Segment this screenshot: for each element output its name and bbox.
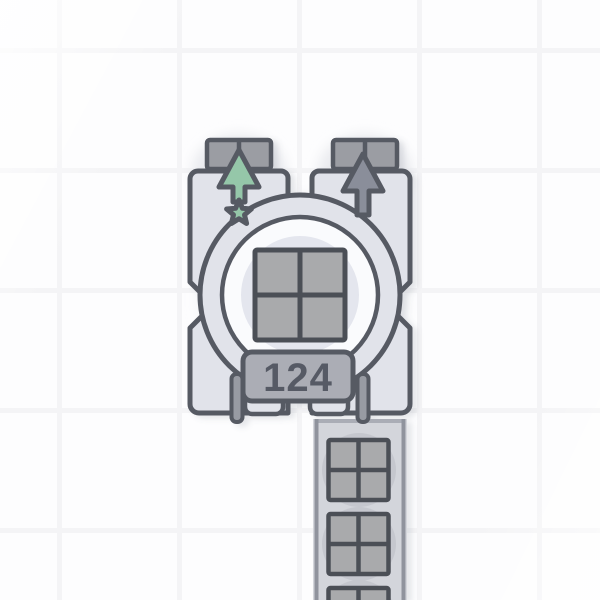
belt-item-crate-1 (329, 440, 389, 500)
producer-machine[interactable]: 124 (190, 140, 410, 422)
world-layer: 124 (0, 0, 600, 600)
belt-item-crate-2 (329, 514, 389, 574)
count-badge-label: 124 (263, 356, 333, 400)
belt-item-crate-3 (329, 588, 389, 600)
machine-item-crate (255, 250, 345, 340)
right-post (358, 374, 369, 422)
game-canvas[interactable]: 124 (0, 0, 600, 600)
conveyor-belt[interactable] (313, 419, 407, 600)
